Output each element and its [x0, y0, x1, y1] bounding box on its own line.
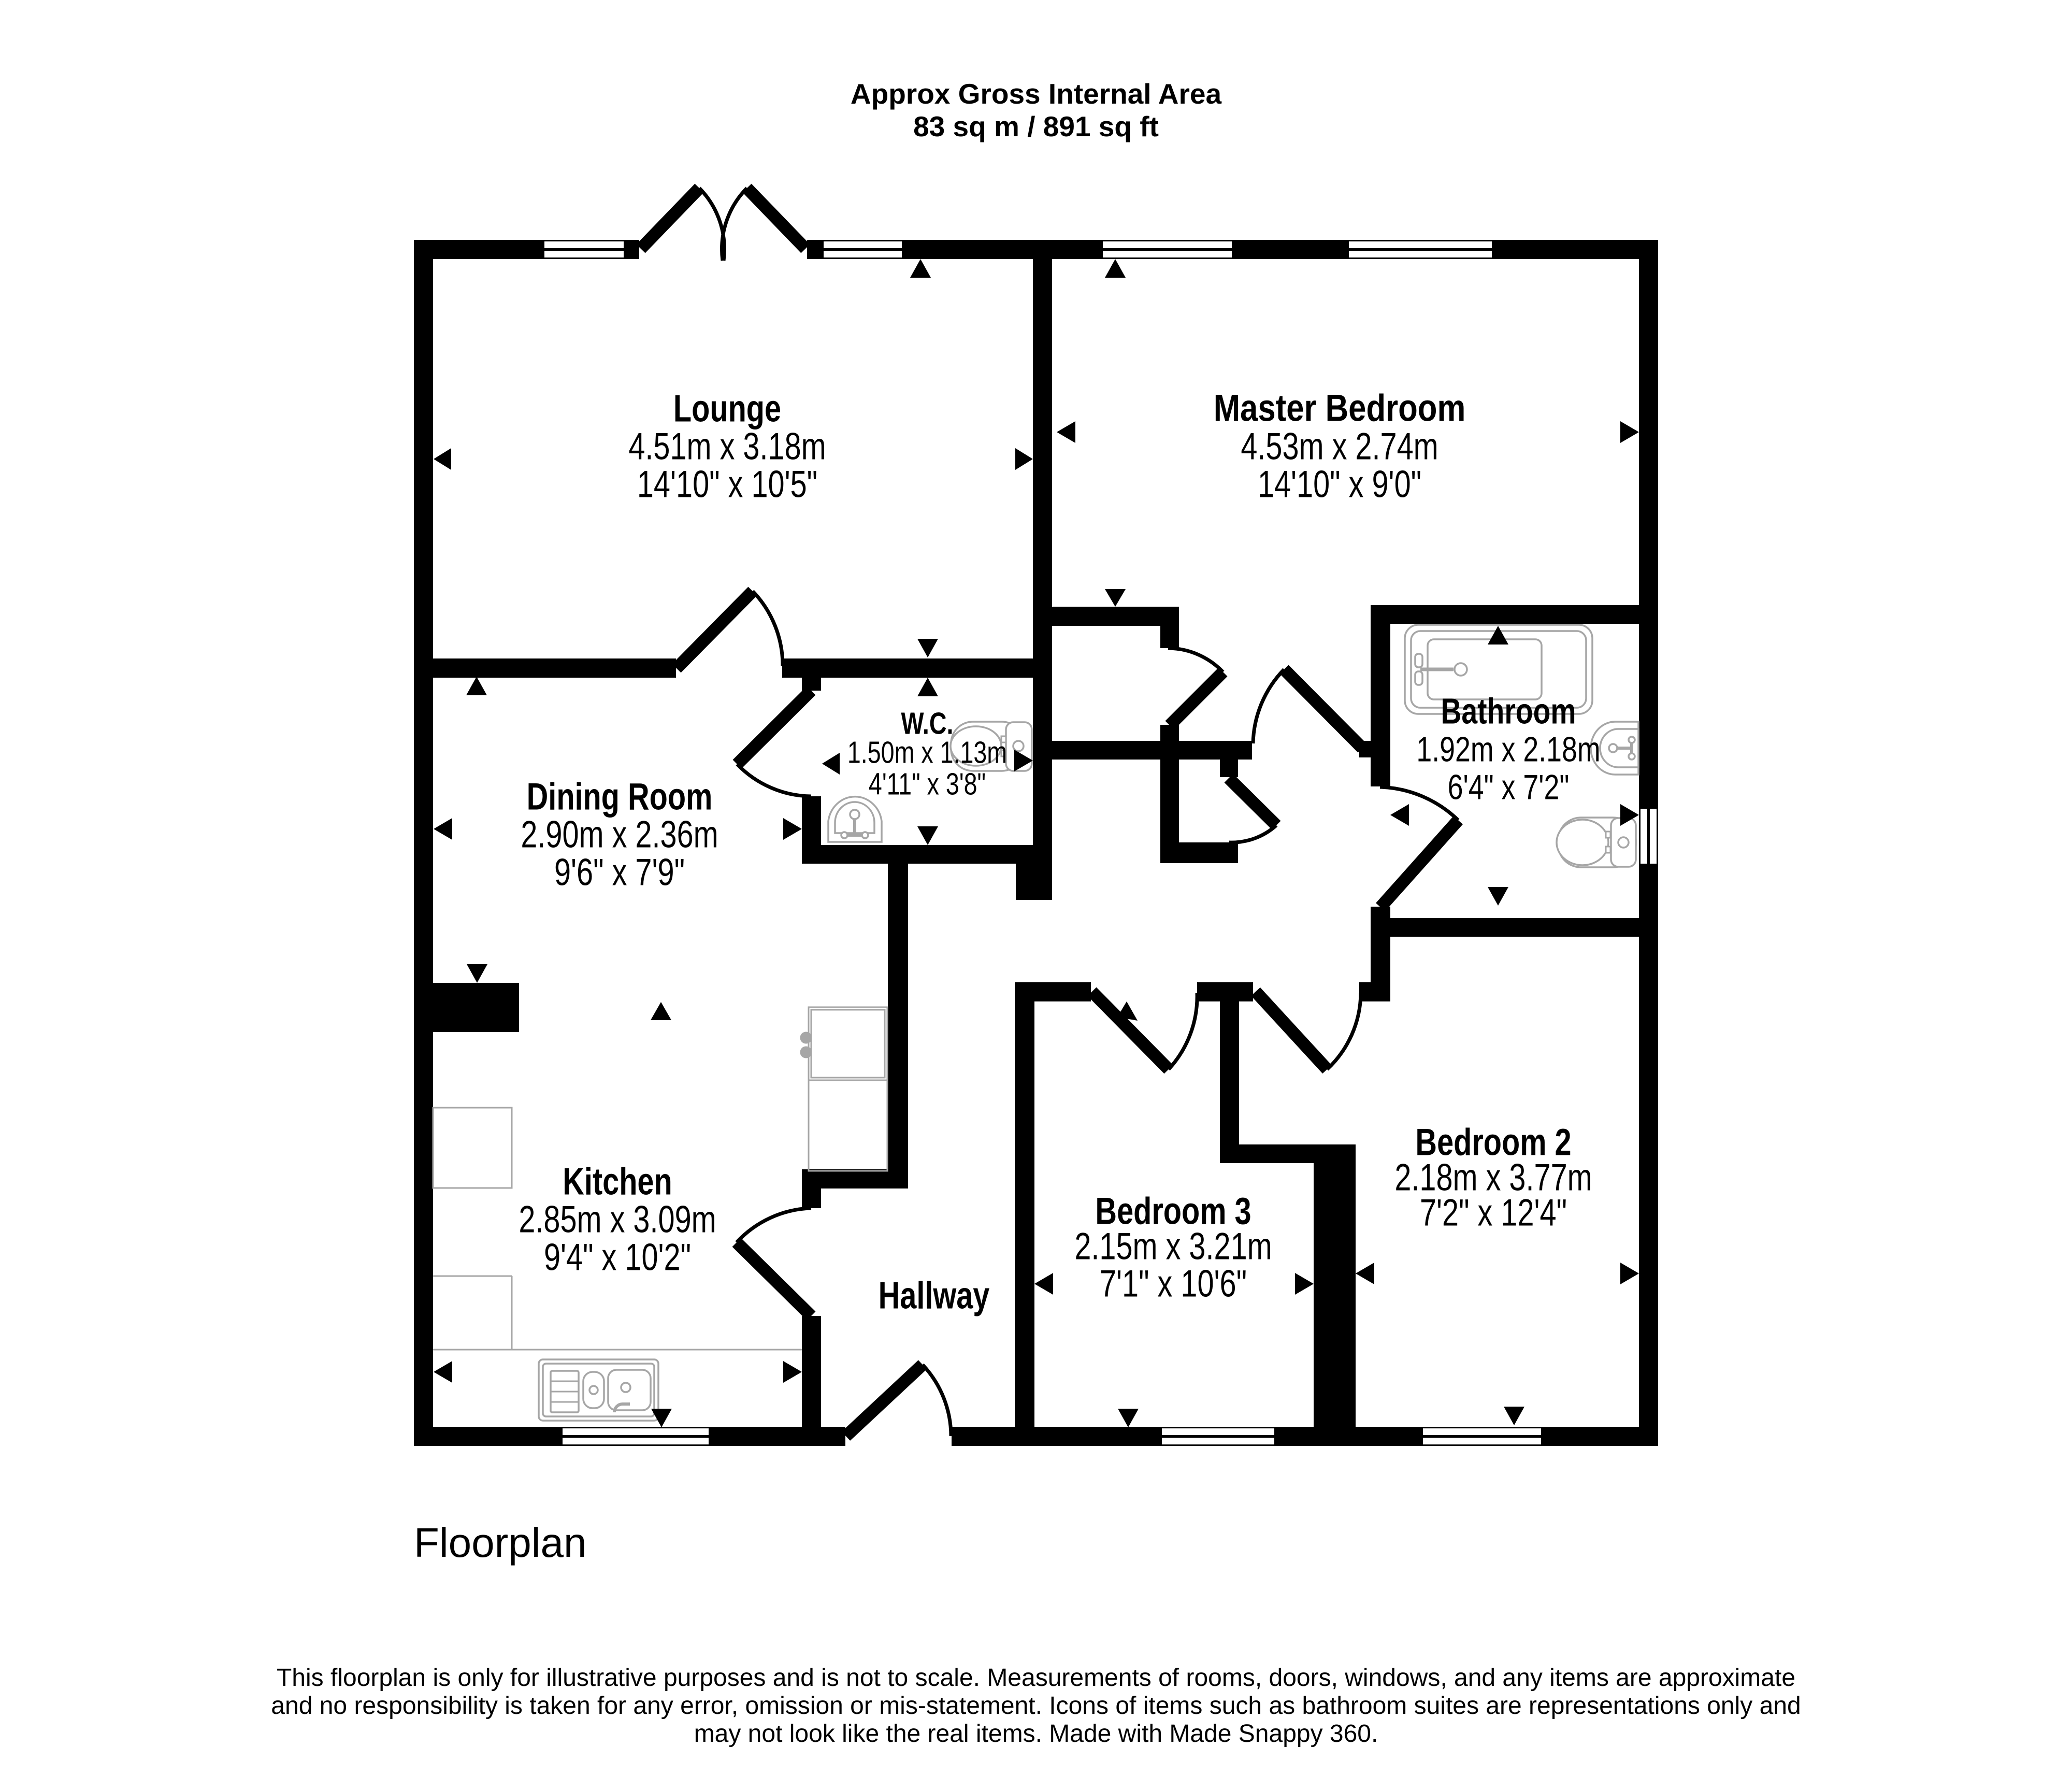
- svg-text:Kitchen: Kitchen: [563, 1160, 672, 1202]
- svg-text:14'10" x 9'0": 14'10" x 9'0": [1258, 463, 1421, 505]
- svg-text:1.92m x 2.18m: 1.92m x 2.18m: [1416, 729, 1600, 768]
- svg-text:4.53m x 2.74m: 4.53m x 2.74m: [1241, 425, 1438, 467]
- svg-text:7'2" x 12'4": 7'2" x 12'4": [1420, 1191, 1567, 1234]
- svg-text:Approx Gross Internal Area: Approx Gross Internal Area: [851, 78, 1222, 110]
- svg-text:Dining Room: Dining Room: [527, 775, 713, 818]
- svg-text:Hallway: Hallway: [879, 1274, 990, 1316]
- svg-text:Master Bedroom: Master Bedroom: [1214, 387, 1466, 429]
- svg-text:1.50m x 1.13m: 1.50m x 1.13m: [847, 736, 1007, 769]
- svg-text:This floorplan is only for ill: This floorplan is only for illustrative …: [277, 1664, 1795, 1692]
- svg-text:2.15m x 3.21m: 2.15m x 3.21m: [1074, 1225, 1272, 1267]
- svg-text:9'4" x 10'2": 9'4" x 10'2": [544, 1236, 691, 1278]
- svg-text:4'11" x 3'8": 4'11" x 3'8": [869, 767, 986, 801]
- svg-text:Floorplan: Floorplan: [414, 1520, 587, 1566]
- svg-text:and no responsibility is taken: and no responsibility is taken for any e…: [271, 1692, 1801, 1720]
- svg-text:14'10" x 10'5": 14'10" x 10'5": [637, 463, 817, 505]
- svg-text:2.85m x 3.09m: 2.85m x 3.09m: [519, 1198, 716, 1240]
- svg-text:7'1" x 10'6": 7'1" x 10'6": [1100, 1262, 1247, 1305]
- svg-text:Bathroom: Bathroom: [1441, 691, 1576, 732]
- svg-text:Lounge: Lounge: [673, 387, 781, 429]
- svg-text:2.90m x 2.36m: 2.90m x 2.36m: [521, 813, 718, 855]
- svg-text:83 sq m / 891 sq ft: 83 sq m / 891 sq ft: [913, 110, 1159, 142]
- svg-text:4.51m x 3.18m: 4.51m x 3.18m: [628, 425, 826, 467]
- svg-text:may not look like the real ite: may not look like the real items. Made w…: [694, 1720, 1378, 1748]
- svg-text:6'4" x 7'2": 6'4" x 7'2": [1448, 767, 1570, 806]
- svg-text:9'6" x 7'9": 9'6" x 7'9": [554, 851, 685, 893]
